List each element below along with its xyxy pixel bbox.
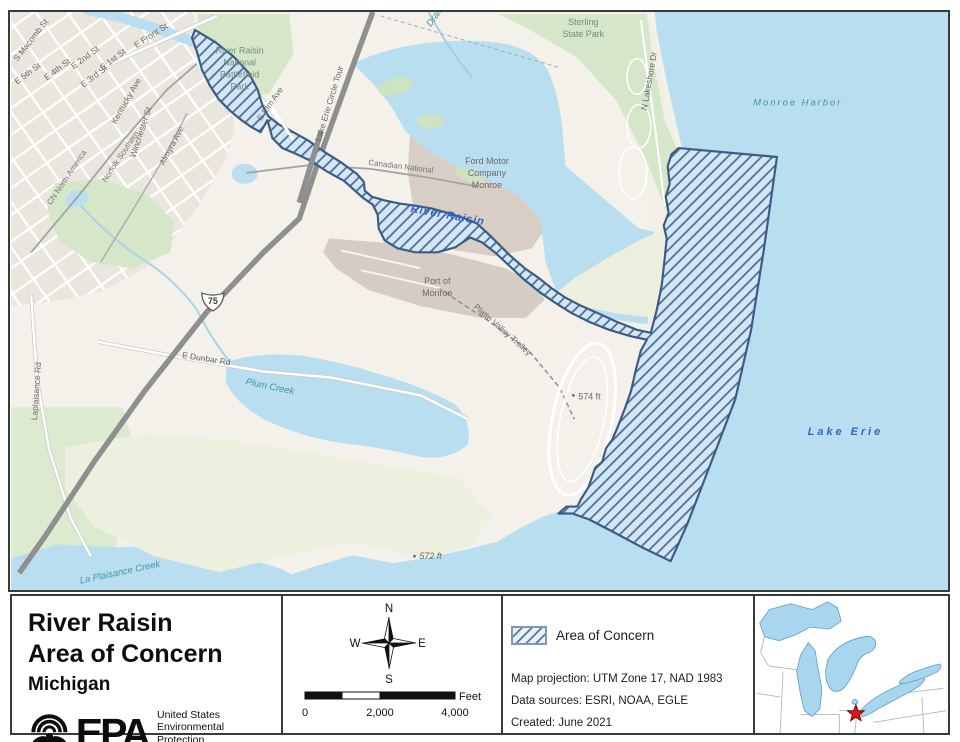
main-map: 75 S Macomb St E Front St E 1st St E 2nd… [10, 12, 948, 590]
legend-entry-aoc: Area of Concern [511, 626, 654, 645]
scale-tick-0: 0 [302, 707, 308, 719]
label-battlefield-4: Park [230, 81, 249, 91]
compass-w: W [350, 638, 361, 650]
compass-rose-icon: N E S W [350, 603, 427, 686]
compass-n: N [385, 603, 393, 615]
legend-aoc-label: Area of Concern [556, 628, 654, 643]
credit-projection: Map projection: UTM Zone 17, NAD 1983 [511, 668, 723, 690]
map-title-line2: Area of Concern [28, 639, 271, 670]
scale-unit: Feet [459, 691, 481, 703]
inset-map-panel [753, 594, 950, 735]
label-monroe-harbor: Monroe Harbor [753, 96, 842, 107]
scale-tick-2000: 2,000 [366, 707, 394, 719]
credit-created: Created: June 2021 [511, 712, 723, 734]
epa-logo: EPA United States Environmental Protecti… [28, 709, 271, 742]
compass-scale-panel: N E S W Feet 0 2,000 4,000 [281, 594, 503, 735]
map-document: 75 S Macomb St E Front St E 1st St E 2nd… [0, 0, 960, 742]
aoc-swatch-icon [511, 626, 547, 645]
credit-sources: Data sources: ESRI, NOAA, EGLE [511, 690, 723, 712]
label-battlefield-1: River Raisin [216, 46, 264, 56]
label-ford-3: Monroe [472, 180, 502, 190]
label-battlefield-3: Battlefield [220, 70, 259, 80]
label-port-2: Monroe [422, 288, 452, 298]
label-sterling-1: Sterling [568, 17, 598, 27]
compass-scale-graphic: N E S W Feet 0 2,000 4,000 [283, 596, 501, 733]
label-elev-574: 574 ft [578, 391, 601, 401]
title-panel: River Raisin Area of Concern Michigan EP… [10, 594, 283, 735]
map-subtitle: Michigan [28, 674, 271, 696]
main-map-frame: 75 S Macomb St E Front St E 1st St E 2nd… [8, 10, 950, 592]
map-title-line1: River Raisin [28, 608, 271, 639]
compass-s: S [385, 674, 393, 686]
shield-number: 75 [208, 296, 218, 306]
compass-e: E [418, 638, 426, 650]
label-battlefield-2: National [223, 58, 256, 68]
label-sterling-2: State Park [562, 29, 604, 39]
lake-st-clair [852, 700, 858, 705]
epa-tagline: United States Environmental Protection A… [157, 709, 271, 742]
epa-acronym: EPA [76, 713, 148, 742]
label-lake-erie: Lake Erie [808, 426, 883, 438]
scale-bar: Feet 0 2,000 4,000 [302, 691, 481, 719]
great-lakes-inset-map [755, 596, 948, 733]
label-elev-572: 572 ft [419, 551, 442, 561]
epa-flower-icon [28, 712, 71, 742]
label-ford-2: Company [468, 168, 507, 178]
label-port-1: Port of [424, 276, 451, 286]
legend-panel: Area of Concern Map projection: UTM Zone… [501, 594, 755, 735]
map-credits: Map projection: UTM Zone 17, NAD 1983 Da… [511, 668, 723, 734]
label-ford-1: Ford Motor [465, 156, 509, 166]
scale-tick-4000: 4,000 [441, 707, 469, 719]
